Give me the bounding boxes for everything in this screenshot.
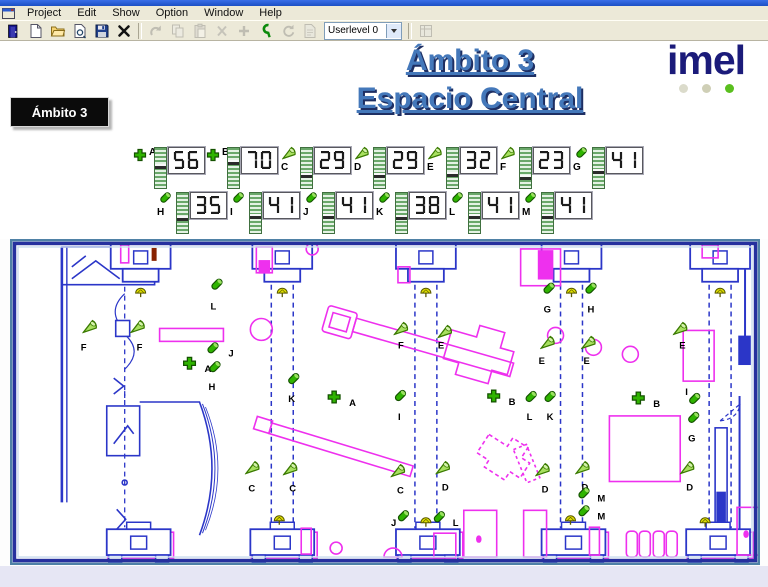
svg-text:L: L: [210, 302, 216, 313]
cylinder-sensor-icon: [158, 191, 172, 205]
sensor-gauge: [446, 147, 459, 189]
svg-text:H: H: [208, 382, 215, 393]
refresh-icon[interactable]: [277, 21, 299, 41]
sensor-letter: L: [449, 207, 455, 218]
sensor-gauge: [249, 192, 262, 234]
cylinder-sensor-icon: [574, 146, 588, 160]
sensor-letter: M: [522, 207, 530, 218]
sensor-readout-D[interactable]: D: [352, 146, 425, 192]
sensor-letter: C: [281, 162, 288, 173]
delete-icon[interactable]: [113, 21, 135, 41]
menu-item-window[interactable]: Window: [196, 6, 251, 20]
sensor-gauge: [541, 192, 554, 234]
svg-text:E: E: [539, 356, 545, 367]
sensor-readout-B[interactable]: B: [206, 146, 279, 192]
sensor-value-display: [460, 147, 497, 174]
svg-text:I: I: [685, 387, 688, 398]
sensor-value-display: [482, 192, 519, 219]
exit-icon[interactable]: [3, 21, 25, 41]
undo-icon[interactable]: [145, 21, 167, 41]
sensor-readout-K[interactable]: K: [374, 191, 447, 237]
svg-text:B: B: [653, 399, 660, 410]
svg-text:F: F: [137, 342, 143, 353]
svg-text:A: A: [349, 398, 356, 409]
imel-logo-text: imel: [652, 38, 760, 82]
svg-text:G: G: [544, 305, 551, 316]
report-icon[interactable]: [299, 21, 321, 41]
sensor-letter: K: [376, 207, 383, 218]
svg-text:J: J: [228, 348, 233, 359]
paste-icon[interactable]: [189, 21, 211, 41]
sensor-gauge: [300, 147, 313, 189]
status-strip: [0, 566, 768, 587]
svg-text:J: J: [391, 518, 396, 529]
sensor-gauge: [373, 147, 386, 189]
sensor-gauge: [592, 147, 605, 189]
menu-item-project[interactable]: Project: [19, 6, 69, 20]
app-window: ProjectEditShowOptionWindowHelp Userleve…: [0, 0, 768, 587]
svg-text:L: L: [527, 412, 533, 423]
logo-dot-3: [725, 84, 734, 93]
sensor-readout-row-2: HIJKLM: [155, 191, 593, 237]
chevron-down-icon[interactable]: [386, 24, 401, 38]
sensor-letter: H: [157, 207, 164, 218]
svg-text:I: I: [398, 412, 401, 423]
svg-text:D: D: [442, 482, 449, 493]
sensor-value-display: [314, 147, 351, 174]
sensor-gauge: [519, 147, 532, 189]
cylinder-sensor-icon: [377, 191, 391, 205]
cylinder-sensor-icon: [231, 191, 245, 205]
svg-text:C: C: [289, 483, 296, 494]
logo-dot-2: [702, 84, 711, 93]
plus-sensor-icon: [133, 148, 147, 162]
sensor-readout-J[interactable]: J: [301, 191, 374, 237]
copy-icon[interactable]: [167, 21, 189, 41]
sensor-gauge: [395, 192, 408, 234]
toolbar-separator: [408, 23, 412, 39]
userlevel-combobox[interactable]: Userlevel 0: [324, 22, 402, 40]
cone-sensor-icon: [428, 146, 442, 160]
open-icon[interactable]: [47, 21, 69, 41]
svg-text:F: F: [398, 340, 404, 351]
svg-text:K: K: [547, 412, 554, 423]
svg-text:C: C: [397, 485, 404, 496]
imel-logo: imel: [652, 38, 760, 93]
sensor-value-display: [241, 147, 278, 174]
sensor-letter: F: [500, 162, 506, 173]
menu-item-help[interactable]: Help: [251, 6, 290, 20]
connect-icon[interactable]: [255, 21, 277, 41]
svg-text:C: C: [248, 483, 255, 494]
sensor-letter: I: [230, 207, 233, 218]
new-icon[interactable]: [25, 21, 47, 41]
menu-bar: ProjectEditShowOptionWindowHelp: [0, 6, 768, 20]
svg-text:M: M: [597, 511, 605, 522]
sensor-gauge: [322, 192, 335, 234]
sensor-gauge: [227, 147, 240, 189]
sensor-readout-I[interactable]: I: [228, 191, 301, 237]
cone-sensor-icon: [282, 146, 296, 160]
svg-text:H: H: [587, 305, 594, 316]
sensor-readout-row-1: ABCDEFG: [133, 146, 644, 192]
menu-item-edit[interactable]: Edit: [69, 6, 104, 20]
sensor-letter: G: [573, 162, 581, 173]
sensor-letter: E: [427, 162, 434, 173]
sensor-letter: J: [303, 207, 309, 218]
cylinder-sensor-icon: [523, 191, 537, 205]
svg-text:F: F: [81, 342, 87, 353]
sensor-readout-F[interactable]: F: [498, 146, 571, 192]
save-icon[interactable]: [91, 21, 113, 41]
sensor-readout-E[interactable]: E: [425, 146, 498, 192]
sensor-value-display: [336, 192, 373, 219]
cone-sensor-icon: [501, 146, 515, 160]
sensor-readout-M[interactable]: M: [520, 191, 593, 237]
sensor-value-display: [168, 147, 205, 174]
import-icon[interactable]: [69, 21, 91, 41]
sensor-value-display: [533, 147, 570, 174]
app-icon[interactable]: [2, 8, 15, 19]
svg-text:D: D: [542, 484, 549, 495]
plus-sensor-icon: [206, 148, 220, 162]
toolbar-separator: [138, 23, 142, 39]
cylinder-sensor-icon: [450, 191, 464, 205]
sensor-value-display: [263, 192, 300, 219]
floor-plan: LGHFFFEEEEJAHKAIBBLKIGCCCDDDDMMJL: [10, 239, 760, 565]
ambito-3-button[interactable]: Ámbito 3: [10, 97, 109, 127]
svg-text:E: E: [679, 340, 685, 351]
svg-text:L: L: [453, 518, 459, 529]
sensor-readout-L[interactable]: L: [447, 191, 520, 237]
imel-logo-dots: [652, 84, 760, 93]
cut-icon[interactable]: [211, 21, 233, 41]
svg-text:E: E: [438, 340, 444, 351]
svg-text:M: M: [597, 493, 605, 504]
sensor-value-display: [555, 192, 592, 219]
sensor-gauge: [176, 192, 189, 234]
sensor-readout-A[interactable]: A: [133, 146, 206, 192]
svg-text:D: D: [686, 482, 693, 493]
svg-text:G: G: [688, 434, 695, 445]
sensor-readout-C[interactable]: C: [279, 146, 352, 192]
userlevel-value: Userlevel 0: [325, 25, 386, 36]
sensor-gauge: [468, 192, 481, 234]
svg-text:B: B: [509, 397, 516, 408]
sensor-gauge: [154, 147, 167, 189]
cylinder-sensor-icon: [304, 191, 318, 205]
svg-text:K: K: [288, 394, 295, 405]
sensor-value-display: [190, 192, 227, 219]
svg-text:E: E: [583, 356, 589, 367]
sensor-readout-G[interactable]: G: [571, 146, 644, 192]
cone-sensor-icon: [355, 146, 369, 160]
sensor-value-display: [409, 192, 446, 219]
properties-icon[interactable]: [415, 21, 437, 41]
sensor-letter: D: [354, 162, 361, 173]
sensor-value-display: [387, 147, 424, 174]
sensor-value-display: [606, 147, 643, 174]
menu-item-show[interactable]: Show: [104, 6, 148, 20]
sensor-readout-H[interactable]: H: [155, 191, 228, 237]
logo-dot-1: [679, 84, 688, 93]
add-icon[interactable]: [233, 21, 255, 41]
menu-item-option[interactable]: Option: [148, 6, 196, 20]
